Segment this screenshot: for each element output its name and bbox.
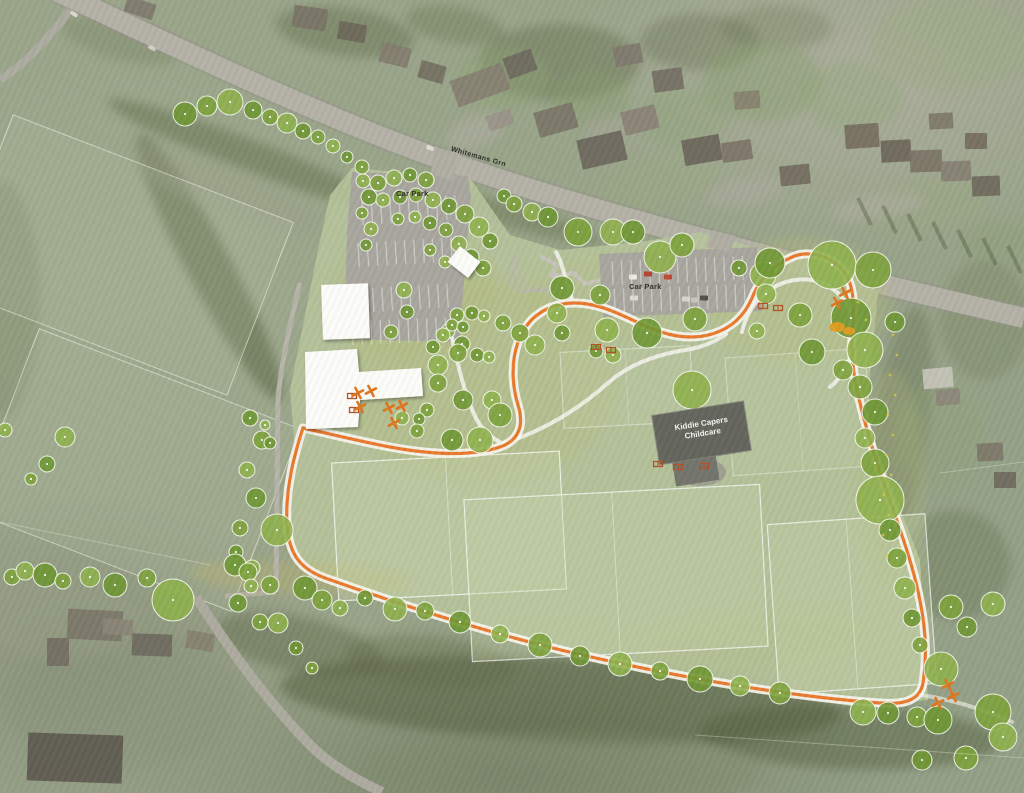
tree-center-dot bbox=[269, 116, 271, 118]
tree-symbol bbox=[538, 207, 558, 227]
tree-center-dot bbox=[184, 113, 186, 115]
tree-symbol bbox=[554, 325, 570, 341]
tree-symbol bbox=[847, 332, 883, 368]
tree-symbol bbox=[449, 611, 471, 633]
tree-symbol bbox=[306, 662, 318, 674]
tree-center-dot bbox=[765, 293, 767, 295]
tree-center-dot bbox=[864, 437, 866, 439]
wildflower-dot bbox=[892, 434, 895, 437]
tree-center-dot bbox=[691, 389, 693, 391]
tree-symbol bbox=[312, 590, 332, 610]
tree-symbol bbox=[570, 646, 590, 666]
tree-symbol bbox=[954, 746, 978, 770]
tree-center-dot bbox=[425, 179, 427, 181]
tree-symbol bbox=[788, 303, 812, 327]
tree-center-dot bbox=[445, 229, 447, 231]
terrain-patch bbox=[702, 42, 822, 122]
tree-symbol bbox=[197, 96, 217, 116]
tree-center-dot bbox=[448, 205, 450, 207]
existing-building bbox=[576, 130, 628, 170]
wildflower-dot bbox=[865, 319, 868, 322]
tree-symbol bbox=[755, 248, 785, 278]
tree-center-dot bbox=[478, 226, 480, 228]
tree-center-dot bbox=[361, 166, 363, 168]
play-mound bbox=[843, 327, 855, 335]
wildflower-dot bbox=[894, 394, 897, 397]
tree-symbol bbox=[152, 579, 194, 621]
masterplan-map: Car Park Whitemans Grn Car Park Kiddie C… bbox=[0, 0, 1024, 793]
tree-symbol bbox=[482, 233, 498, 249]
wildflower-dot bbox=[889, 374, 892, 377]
tree-symbol bbox=[981, 592, 1005, 616]
tree-center-dot bbox=[459, 621, 461, 623]
tree-symbol bbox=[446, 319, 458, 331]
tree-symbol bbox=[428, 355, 448, 375]
tree-symbol bbox=[261, 514, 293, 546]
tree-center-dot bbox=[471, 312, 473, 314]
existing-building bbox=[977, 442, 1004, 461]
tree-symbol bbox=[470, 348, 484, 362]
tree-center-dot bbox=[458, 243, 460, 245]
tree-center-dot bbox=[368, 196, 370, 198]
tree-center-dot bbox=[831, 264, 833, 266]
tree-symbol bbox=[386, 170, 402, 186]
tree-center-dot bbox=[249, 417, 251, 419]
tree-center-dot bbox=[339, 607, 341, 609]
existing-building bbox=[965, 133, 987, 149]
tree-symbol bbox=[409, 211, 421, 223]
tree-symbol bbox=[621, 220, 645, 244]
tree-center-dot bbox=[911, 617, 913, 619]
tree-symbol bbox=[356, 174, 370, 188]
tree-symbol bbox=[232, 520, 248, 536]
tree-symbol bbox=[355, 160, 369, 174]
tree-symbol bbox=[799, 339, 825, 365]
tree-symbol bbox=[730, 676, 750, 696]
tree-symbol bbox=[467, 427, 493, 453]
tree-symbol bbox=[364, 222, 378, 236]
tree-symbol bbox=[418, 172, 434, 188]
tree-symbol bbox=[488, 403, 512, 427]
car-park-east-parked-car bbox=[700, 296, 708, 301]
tree-symbol bbox=[894, 577, 916, 599]
tree-symbol bbox=[262, 109, 278, 125]
tree-symbol bbox=[244, 101, 262, 119]
pavilion-building bbox=[321, 283, 370, 340]
tree-center-dot bbox=[694, 318, 696, 320]
tree-symbol bbox=[912, 750, 932, 770]
existing-building bbox=[485, 108, 515, 131]
tree-symbol bbox=[260, 420, 270, 430]
existing-building bbox=[941, 160, 972, 181]
tree-center-dot bbox=[879, 499, 881, 501]
wildflower-dot bbox=[886, 554, 889, 557]
tree-center-dot bbox=[172, 599, 174, 601]
tree-symbol bbox=[670, 233, 694, 257]
tree-center-dot bbox=[488, 356, 490, 358]
tree-center-dot bbox=[464, 213, 466, 215]
tree-symbol bbox=[912, 637, 928, 653]
tree-symbol bbox=[453, 390, 473, 410]
tree-symbol bbox=[441, 198, 457, 214]
tree-center-dot bbox=[483, 315, 485, 317]
tree-center-dot bbox=[811, 351, 813, 353]
tree-symbol bbox=[885, 312, 905, 332]
tree-symbol bbox=[410, 424, 424, 438]
tree-center-dot bbox=[261, 439, 263, 441]
tree-symbol bbox=[326, 139, 340, 153]
tree-symbol bbox=[264, 437, 276, 449]
tree-symbol bbox=[483, 351, 495, 363]
tree-symbol bbox=[25, 473, 37, 485]
tree-center-dot bbox=[426, 409, 428, 411]
existing-building bbox=[922, 367, 954, 390]
tree-center-dot bbox=[403, 289, 405, 291]
tree-center-dot bbox=[429, 249, 431, 251]
tree-symbol bbox=[244, 579, 258, 593]
tree-center-dot bbox=[362, 180, 364, 182]
tree-center-dot bbox=[937, 719, 939, 721]
tree-center-dot bbox=[414, 216, 416, 218]
tree-center-dot bbox=[437, 364, 439, 366]
tree-symbol bbox=[687, 666, 713, 692]
tree-symbol bbox=[239, 462, 255, 478]
tree-center-dot bbox=[321, 599, 323, 601]
tree-center-dot bbox=[277, 622, 279, 624]
tree-center-dot bbox=[503, 195, 505, 197]
tree-center-dot bbox=[255, 497, 257, 499]
tree-symbol bbox=[833, 360, 853, 380]
existing-building bbox=[292, 5, 329, 32]
tree-center-dot bbox=[599, 294, 601, 296]
tree-symbol bbox=[651, 662, 669, 680]
tree-center-dot bbox=[418, 418, 420, 420]
sports-pitch bbox=[767, 514, 936, 695]
tree-center-dot bbox=[739, 685, 741, 687]
tree-symbol bbox=[413, 413, 425, 425]
wildflower-dot bbox=[890, 474, 893, 477]
tree-center-dot bbox=[965, 757, 967, 759]
tree-center-dot bbox=[889, 529, 891, 531]
tree-symbol bbox=[491, 625, 509, 643]
tree-center-dot bbox=[919, 644, 921, 646]
car-park-east-parked-car bbox=[664, 275, 672, 280]
tree-symbol bbox=[564, 218, 592, 246]
tree-center-dot bbox=[390, 331, 392, 333]
tree-center-dot bbox=[499, 633, 501, 635]
tree-center-dot bbox=[44, 574, 46, 576]
tree-center-dot bbox=[612, 354, 614, 356]
tree-center-dot bbox=[1002, 736, 1004, 738]
tree-center-dot bbox=[30, 478, 32, 480]
tree-symbol bbox=[605, 347, 621, 363]
tree-center-dot bbox=[406, 311, 408, 313]
tree-center-dot bbox=[874, 411, 876, 413]
tree-symbol bbox=[769, 682, 791, 704]
tree-center-dot bbox=[429, 222, 431, 224]
existing-building bbox=[721, 139, 753, 163]
tree-symbol bbox=[465, 306, 479, 320]
tree-center-dot bbox=[595, 350, 597, 352]
wildflower-dot bbox=[885, 454, 888, 457]
tree-symbol bbox=[395, 411, 409, 425]
tree-center-dot bbox=[489, 240, 491, 242]
existing-building bbox=[910, 149, 943, 172]
tree-center-dot bbox=[11, 576, 13, 578]
tree-symbol bbox=[423, 216, 437, 230]
tree-center-dot bbox=[632, 231, 634, 233]
tree-center-dot bbox=[237, 602, 239, 604]
tree-center-dot bbox=[370, 228, 372, 230]
tree-symbol bbox=[426, 340, 440, 354]
tree-symbol bbox=[392, 213, 404, 225]
tree-center-dot bbox=[286, 122, 288, 124]
wildflower-dot bbox=[896, 354, 899, 357]
tree-center-dot bbox=[317, 136, 319, 138]
tree-center-dot bbox=[874, 462, 876, 464]
tree-center-dot bbox=[842, 369, 844, 371]
tree-center-dot bbox=[681, 244, 683, 246]
tree-symbol bbox=[357, 590, 373, 606]
tree-symbol bbox=[361, 189, 377, 205]
existing-building bbox=[652, 67, 685, 93]
existing-building bbox=[929, 112, 954, 129]
wildflower-dot bbox=[892, 334, 895, 337]
tree-center-dot bbox=[304, 587, 306, 589]
tree-symbol bbox=[848, 375, 872, 399]
tree-symbol bbox=[939, 595, 963, 619]
tree-center-dot bbox=[992, 711, 994, 713]
tree-center-dot bbox=[799, 314, 801, 316]
tree-symbol bbox=[457, 321, 469, 333]
tree-symbol bbox=[731, 260, 747, 276]
play-mound bbox=[829, 322, 845, 332]
road-branch bbox=[0, 10, 70, 80]
tree-symbol bbox=[550, 276, 574, 300]
tree-center-dot bbox=[24, 570, 26, 572]
tree-center-dot bbox=[606, 329, 608, 331]
tree-center-dot bbox=[612, 231, 614, 233]
tree-symbol bbox=[887, 548, 907, 568]
tree-symbol bbox=[429, 374, 447, 392]
wildflower-dot bbox=[883, 494, 886, 497]
tree-center-dot bbox=[561, 287, 563, 289]
tree-center-dot bbox=[295, 647, 297, 649]
tree-center-dot bbox=[206, 105, 208, 107]
tree-center-dot bbox=[64, 436, 66, 438]
tree-symbol bbox=[877, 702, 899, 724]
tree-center-dot bbox=[659, 670, 661, 672]
tree-center-dot bbox=[457, 352, 459, 354]
tree-center-dot bbox=[619, 663, 621, 665]
existing-building bbox=[533, 102, 579, 138]
tree-symbol bbox=[242, 410, 258, 426]
tree-center-dot bbox=[364, 597, 366, 599]
tree-center-dot bbox=[276, 529, 278, 531]
tree-symbol bbox=[855, 252, 891, 288]
tree-symbol bbox=[478, 310, 490, 322]
tree-center-dot bbox=[259, 621, 261, 623]
tree-center-dot bbox=[479, 439, 481, 441]
tree-symbol bbox=[424, 244, 436, 256]
tree-center-dot bbox=[442, 334, 444, 336]
tree-symbol bbox=[396, 282, 412, 298]
tree-symbol bbox=[383, 597, 407, 621]
tree-symbol bbox=[376, 193, 390, 207]
tree-center-dot bbox=[346, 156, 348, 158]
tree-center-dot bbox=[699, 678, 701, 680]
tree-center-dot bbox=[850, 317, 852, 319]
tree-symbol bbox=[173, 102, 197, 126]
tree-center-dot bbox=[779, 692, 781, 694]
tree-symbol bbox=[356, 207, 368, 219]
existing-building bbox=[103, 618, 134, 636]
tree-symbol bbox=[16, 562, 34, 580]
car-park-east-label: Car Park bbox=[629, 282, 661, 291]
tree-center-dot bbox=[579, 655, 581, 657]
tree-center-dot bbox=[424, 610, 426, 612]
tree-center-dot bbox=[992, 603, 994, 605]
tree-center-dot bbox=[394, 608, 396, 610]
tree-center-dot bbox=[393, 177, 395, 179]
tree-center-dot bbox=[302, 130, 304, 132]
tree-center-dot bbox=[904, 587, 906, 589]
wildflower-dot bbox=[857, 301, 860, 304]
tree-center-dot bbox=[361, 212, 363, 214]
tree-center-dot bbox=[659, 256, 661, 258]
tree-center-dot bbox=[577, 231, 579, 233]
tree-symbol bbox=[749, 323, 765, 339]
tree-symbol bbox=[855, 428, 875, 448]
car-park-east-parked-car bbox=[682, 297, 690, 302]
tree-symbol bbox=[239, 563, 257, 581]
tree-center-dot bbox=[444, 261, 446, 263]
tree-center-dot bbox=[491, 399, 493, 401]
tree-symbol bbox=[903, 609, 921, 627]
tree-center-dot bbox=[476, 354, 478, 356]
existing-building bbox=[972, 176, 1001, 197]
car-park-east-parked-car bbox=[691, 298, 699, 303]
tree-center-dot bbox=[940, 668, 942, 670]
tree-center-dot bbox=[234, 564, 236, 566]
tree-center-dot bbox=[382, 199, 384, 201]
tree-symbol bbox=[528, 633, 552, 657]
tree-symbol bbox=[608, 652, 632, 676]
tree-center-dot bbox=[4, 429, 6, 431]
terrain-patch bbox=[870, 0, 1024, 90]
tree-symbol bbox=[861, 449, 889, 477]
tree-symbol bbox=[879, 519, 901, 541]
tree-symbol bbox=[229, 594, 247, 612]
tree-center-dot bbox=[859, 386, 861, 388]
car-park-west-label: Car Park bbox=[396, 189, 428, 198]
tree-symbol bbox=[673, 371, 711, 409]
tree-symbol bbox=[525, 335, 545, 355]
tree-center-dot bbox=[401, 417, 403, 419]
existing-building bbox=[47, 638, 69, 666]
tree-symbol bbox=[989, 723, 1017, 751]
tree-center-dot bbox=[738, 267, 740, 269]
tree-center-dot bbox=[513, 203, 515, 205]
tree-center-dot bbox=[887, 712, 889, 714]
tree-center-dot bbox=[502, 322, 504, 324]
tree-center-dot bbox=[451, 324, 453, 326]
tree-symbol bbox=[439, 223, 453, 237]
tree-center-dot bbox=[239, 527, 241, 529]
tree-center-dot bbox=[252, 109, 254, 111]
tree-center-dot bbox=[250, 585, 252, 587]
tree-symbol bbox=[39, 456, 55, 472]
tree-center-dot bbox=[246, 469, 248, 471]
tree-symbol bbox=[850, 699, 876, 725]
tree-center-dot bbox=[269, 442, 271, 444]
tree-center-dot bbox=[556, 312, 558, 314]
tree-center-dot bbox=[519, 332, 521, 334]
tree-center-dot bbox=[235, 551, 237, 553]
tree-center-dot bbox=[561, 332, 563, 334]
tree-symbol bbox=[80, 567, 100, 587]
tree-symbol bbox=[924, 706, 952, 734]
tree-center-dot bbox=[547, 216, 549, 218]
tree-center-dot bbox=[365, 244, 367, 246]
tree-symbol bbox=[384, 325, 398, 339]
tree-symbol bbox=[856, 476, 904, 524]
tree-center-dot bbox=[950, 606, 952, 608]
tree-symbol bbox=[103, 573, 127, 597]
tree-symbol bbox=[341, 151, 353, 163]
tree-center-dot bbox=[269, 584, 271, 586]
tree-center-dot bbox=[62, 580, 64, 582]
wildflower-dot bbox=[888, 514, 891, 517]
tree-center-dot bbox=[966, 626, 968, 628]
car-park-east-parked-car bbox=[630, 296, 638, 301]
tree-center-dot bbox=[146, 577, 148, 579]
tree-center-dot bbox=[311, 667, 313, 669]
tree-symbol bbox=[683, 307, 707, 331]
tree-center-dot bbox=[432, 199, 434, 201]
tree-center-dot bbox=[462, 399, 464, 401]
tree-center-dot bbox=[872, 269, 874, 271]
existing-building bbox=[844, 123, 880, 149]
tree-symbol bbox=[246, 488, 266, 508]
tree-center-dot bbox=[456, 314, 458, 316]
existing-building bbox=[27, 732, 124, 783]
tree-symbol bbox=[862, 399, 888, 425]
tree-center-dot bbox=[409, 174, 411, 176]
tree-center-dot bbox=[416, 430, 418, 432]
tree-center-dot bbox=[646, 332, 648, 334]
existing-building bbox=[733, 90, 760, 110]
tree-symbol bbox=[595, 318, 619, 342]
tree-symbol bbox=[277, 113, 297, 133]
tree-center-dot bbox=[916, 716, 918, 718]
tree-symbol bbox=[360, 239, 372, 251]
tree-symbol bbox=[449, 344, 467, 362]
tree-symbol bbox=[495, 315, 511, 331]
tree-symbol bbox=[506, 196, 522, 212]
tree-center-dot bbox=[756, 330, 758, 332]
car-park-east-parked-car bbox=[644, 272, 652, 277]
tree-symbol bbox=[217, 89, 243, 115]
tree-symbol bbox=[311, 130, 325, 144]
tree-center-dot bbox=[247, 571, 249, 573]
tree-symbol bbox=[403, 168, 417, 182]
tree-symbol bbox=[289, 641, 303, 655]
tree-center-dot bbox=[451, 439, 453, 441]
tree-center-dot bbox=[114, 584, 116, 586]
tree-symbol bbox=[252, 614, 268, 630]
tree-center-dot bbox=[432, 346, 434, 348]
